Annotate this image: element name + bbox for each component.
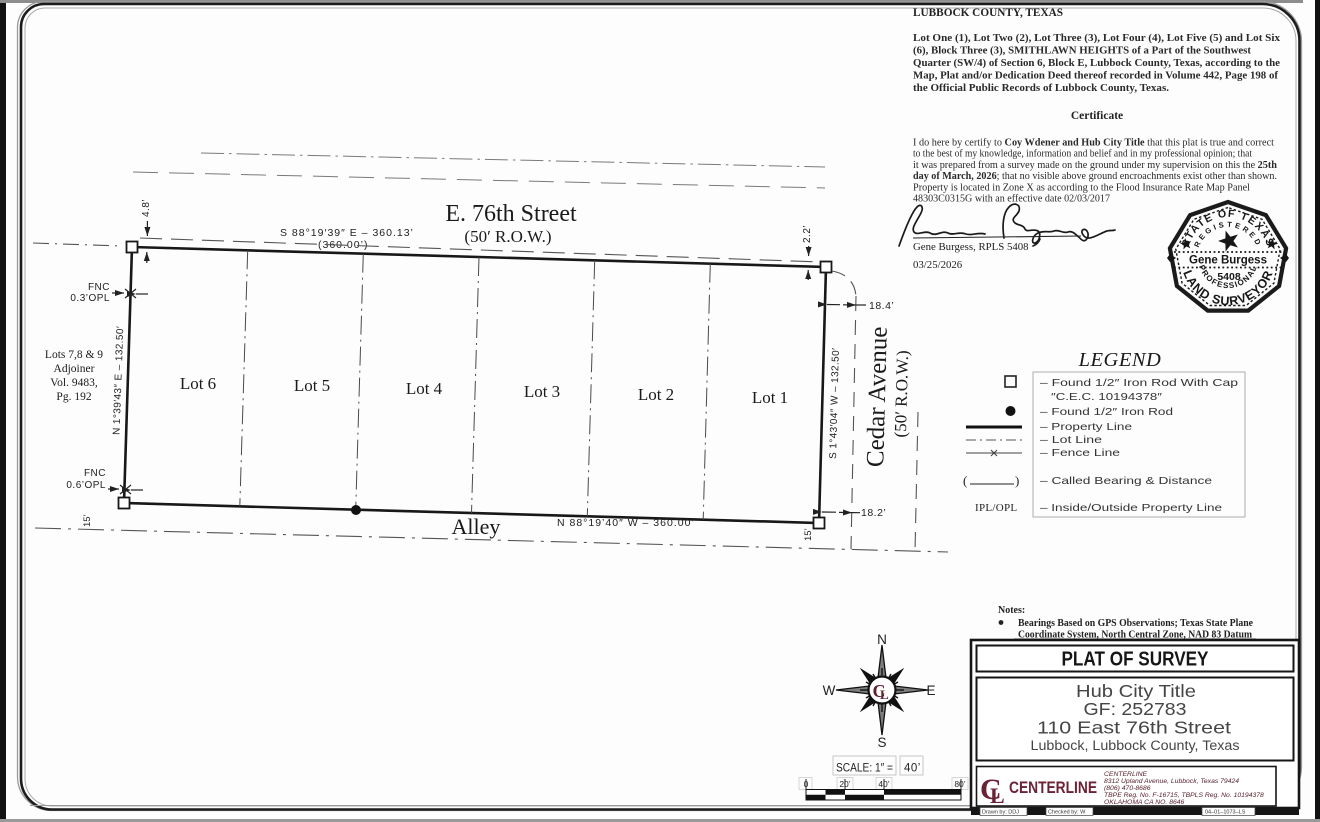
svg-text:0.3’OPL: 0.3’OPL [70, 293, 110, 304]
svg-text:Vol. 9483,: Vol. 9483, [50, 377, 98, 389]
svg-text:I do here by certify to Coy Wd: I do here by certify to Coy Wdener and H… [913, 138, 1274, 149]
svg-text:18.2’: 18.2’ [861, 507, 886, 519]
svg-text:Hub City Title: Hub City Title [1076, 681, 1196, 701]
svg-text:Certificate: Certificate [1071, 110, 1123, 122]
svg-text:S: S [877, 735, 886, 750]
svg-text:(6), Block Three (3), SMITHLAW: (6), Block Three (3), SMITHLAWN HEIGHTS … [913, 45, 1251, 57]
svg-text:– Property Line: – Property Line [1040, 421, 1132, 433]
svg-text:W: W [823, 683, 836, 698]
svg-text:Notes:: Notes: [998, 605, 1025, 616]
svg-text:CENTERLINE: CENTERLINE [1009, 779, 1097, 797]
svg-text:″C.E.C. 10194378″: ″C.E.C. 10194378″ [1051, 391, 1162, 403]
svg-text:L: L [880, 687, 889, 702]
svg-text:S 88°19′39″ E – 360.13’: S 88°19′39″ E – 360.13’ [280, 227, 414, 239]
svg-text:– Called Bearing & Distanc: – Called Bearing & Distance [1040, 475, 1212, 487]
svg-text:Lot One (1), Lot Two (2), Lot: Lot One (1), Lot Two (2), Lot Three (3),… [913, 32, 1280, 44]
svg-text:it was prepared from a survey: it was prepared from a survey made on th… [913, 160, 1277, 171]
svg-text:N: N [877, 632, 887, 647]
svg-text:110 East 76th Street: 110 East 76th Street [1037, 718, 1231, 738]
svg-text:Property is located in Zone X: Property is located in Zone X as accordi… [913, 182, 1250, 193]
svg-text:(: ( [963, 473, 967, 488]
svg-text:FNC: FNC [88, 282, 110, 293]
svg-text:– Inside/Outside Property Li: – Inside/Outside Property Line [1040, 502, 1222, 514]
svg-text:): ) [1015, 473, 1019, 488]
svg-text:E. 76th Street: E. 76th Street [445, 201, 577, 227]
svg-text:Cedar Avenue: Cedar Avenue [862, 326, 893, 467]
svg-text:48303C0315G with an effective: 48303C0315G with an effective date 02/03… [913, 194, 1110, 205]
svg-text:Gene Burgess, RPLS 5408: Gene Burgess, RPLS 5408 [913, 241, 1029, 253]
svg-text:Lot 2: Lot 2 [638, 385, 674, 404]
svg-text:Checked by: W: Checked by: W [1048, 810, 1086, 816]
svg-text:FNC: FNC [84, 468, 106, 479]
svg-text:– Fence Line: – Fence Line [1040, 447, 1120, 459]
svg-text:Lots 7,8 & 9: Lots 7,8 & 9 [45, 349, 103, 361]
svg-text:80’: 80’ [954, 779, 965, 789]
svg-text:(50′ R.O.W.): (50′ R.O.W.) [464, 227, 551, 246]
svg-text:Lot 4: Lot 4 [406, 379, 443, 398]
svg-text:Lot 3: Lot 3 [524, 382, 560, 401]
svg-text:TBPE Reg. No. F-16715, TBPLS R: TBPE Reg. No. F-16715, TBPLS Reg. No. 10… [1104, 792, 1264, 799]
svg-text:Drawn by: DDJ: Drawn by: DDJ [982, 810, 1019, 816]
svg-text:to the best of my knowledge, i: to the best of my knowledge, information… [913, 149, 1252, 160]
svg-text:GF: 252783: GF: 252783 [1084, 699, 1187, 719]
svg-text:Adjoiner: Adjoiner [54, 363, 95, 375]
svg-text:Quarter (SW/4) of Section 6, B: Quarter (SW/4) of Section 6, Block E, Lu… [913, 57, 1280, 69]
svg-text:E: E [926, 683, 935, 698]
svg-text:PLAT OF SURVEY: PLAT OF SURVEY [1062, 649, 1210, 671]
svg-text:day of March, 2026; that no vi: day of March, 2026; that no visible abov… [913, 171, 1277, 182]
svg-text:CENTERLINE: CENTERLINE [1104, 771, 1148, 778]
svg-text:L: L [990, 783, 1005, 808]
svg-text:Gene Burgess: Gene Burgess [1189, 255, 1267, 267]
svg-text:Lubbock, Lubbock County, Te: Lubbock, Lubbock County, Texas [1031, 738, 1240, 753]
svg-text:15’: 15’ [82, 514, 93, 527]
svg-text:Bearings Based on GPS Observat: Bearings Based on GPS Observations; Texa… [1018, 618, 1254, 629]
svg-text:Lot 1: Lot 1 [752, 388, 788, 407]
svg-text:Alley: Alley [452, 514, 501, 539]
svg-text:0.6’OPL: 0.6’OPL [66, 480, 106, 491]
svg-text:40’: 40’ [904, 763, 921, 775]
svg-text:OKLAHOMA CA NO. 8646: OKLAHOMA CA NO. 8646 [1104, 799, 1185, 806]
svg-text:N 88°19’40″ W – 360.00’: N 88°19’40″ W – 360.00’ [557, 517, 695, 529]
svg-text:Lot 6: Lot 6 [180, 374, 216, 393]
svg-text:(806) 470-8686: (806) 470-8686 [1104, 785, 1151, 792]
svg-text:LEGEND: LEGEND [1078, 349, 1162, 371]
svg-text:8312 Upland Avenue, Lubbock, T: 8312 Upland Avenue, Lubbock, Texas 79424 [1104, 778, 1239, 785]
svg-text:15’: 15’ [803, 528, 814, 541]
svg-text:LUBBOCK COUNTY, TEXAS: LUBBOCK COUNTY, TEXAS [913, 7, 1063, 19]
svg-text:18.4’: 18.4’ [869, 300, 894, 312]
svg-text:(50′ R.O.W.): (50′ R.O.W.) [891, 350, 912, 438]
svg-text:Pg. 192: Pg. 192 [56, 391, 91, 403]
svg-text:SCALE: 1″ =: SCALE: 1″ = [836, 763, 893, 775]
svg-text:4.8’: 4.8’ [141, 199, 152, 217]
svg-text:03/25/2026: 03/25/2026 [913, 259, 963, 271]
svg-text:04–01–1073–LS: 04–01–1073–LS [1205, 810, 1246, 816]
svg-text:– Lot Line: – Lot Line [1040, 434, 1102, 446]
svg-text:2.2’: 2.2’ [802, 225, 813, 243]
svg-text:– Found 1/2″ Iron Rod With Cap: – Found 1/2″ Iron Rod With Cap [1040, 377, 1238, 389]
svg-text:IPL/OPL: IPL/OPL [975, 502, 1017, 514]
svg-text:Map, Plat and/or Dedication De: Map, Plat and/or Dedication Deed thereof… [913, 70, 1278, 82]
svg-text:Lot 5: Lot 5 [294, 376, 330, 395]
svg-text:the Official Public Records of: the Official Public Records of Lubbock C… [913, 82, 1169, 94]
svg-text:– Found 1/2″ Iron Rod: – Found 1/2″ Iron Rod [1040, 406, 1173, 418]
